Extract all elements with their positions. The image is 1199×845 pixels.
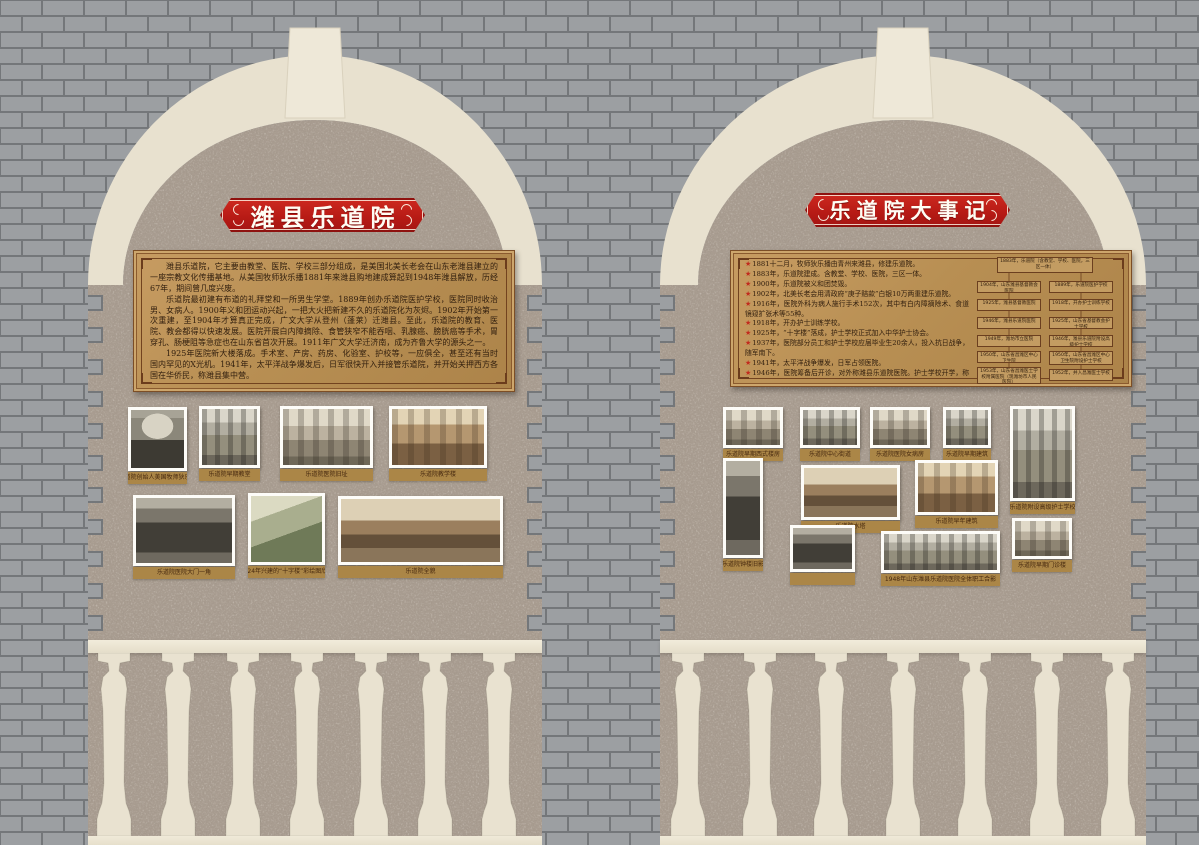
baluster [743,653,777,836]
photo-caption: 1948年山东潍县乐道院医院全体职工合影 [881,574,1000,586]
photo [801,465,900,520]
baluster [482,653,516,836]
panel-title: 乐道院大事记 [824,195,992,225]
flowchart-box: 1950年，山东省昌潍区中心卫生院附设护士学校 [1049,351,1113,365]
photo-image [793,528,852,569]
star-bullet-icon: ★ [745,369,751,377]
flowchart-box: 1946年，潍县乐道院医院 [977,317,1041,329]
photo [800,407,860,448]
flowchart-box: 1918年，开办护士训练学校 [1049,299,1113,311]
photo-image [1015,521,1069,556]
photo-image [392,409,484,465]
photo-caption: 乐道院早期门诊楼 [1012,560,1072,572]
balustrade-bottom-rail [88,836,542,845]
star-bullet-icon: ★ [745,300,751,308]
baluster [1101,653,1135,836]
baluster [226,653,260,836]
star-bullet-icon: ★ [745,290,751,298]
exhibition-panel-ledaoyuan-chronicle: 乐道院大事记 ★1881十二月，牧师狄乐播由青州来潍县，修建乐道院。★1883年… [660,0,1146,845]
photo-image [202,409,257,465]
star-bullet-icon: ★ [745,260,751,268]
flowchart-box: 1952年，并入昌潍医士学校 [1049,369,1113,381]
photo-image [136,498,232,563]
baluster [290,653,324,836]
timeline-item: ★1918年，开办护士训练学校。 [745,319,969,329]
keystone [873,28,933,118]
panel-title: 潍县乐道院 [245,198,401,233]
star-bullet-icon: ★ [745,339,751,347]
intro-paragraph: 1925年医院新大楼落成。手术室、产房、药房、化验室、护校等，一应俱全，甚至还有… [150,349,498,381]
photo-image [1013,409,1072,498]
timeline-list: ★1881十二月，牧师狄乐播由青州来潍县，修建乐道院。★1883年，乐道院建成。… [745,260,969,378]
photo-caption: 乐道院全貌 [338,566,503,578]
photo [943,407,991,448]
photo-caption: 乐道院附设高级护士学校 [1010,502,1075,514]
photo-image [873,410,927,445]
flowchart-box: 1950年，山东省昌潍区中心卫生院 [977,351,1041,363]
photo-image [283,409,370,465]
photo-image [131,410,184,468]
star-bullet-icon: ★ [745,280,751,288]
star-bullet-icon: ★ [745,329,751,337]
photo-image [803,410,857,445]
photo [280,406,373,468]
flowchart-box: 1889年，乐道院医护学校 [1049,281,1113,293]
baluster [958,653,992,836]
balustrade-bottom-rail [660,836,1146,845]
balustrade-top-rail [88,640,542,653]
intro-plaque: 潍县乐道院，它主要由教堂、医院、学校三部分组成，是美国北美长老会在山东老潍县建立… [133,250,515,392]
balustrade-top-rail [660,640,1146,653]
photo-image [726,461,760,555]
timeline-item: ★1916年，医院外科为病人施行手术152次，其中有白内障摘除术、食道镜窥扩张术… [745,300,969,320]
photo [870,407,930,448]
timeline-item: ★1883年，乐道院建成。含教堂、学校、医院，三区一体。 [745,270,969,280]
baluster [161,653,195,836]
timeline-item: ★1946年，医院筹备后开诊，对外称潍县乐道院医院。护士学校开学，称潍县乐道院附… [745,369,969,378]
baluster [354,653,388,836]
photo-caption: 1924年兴建的“十字楼”彩绘图欣赏 [248,566,325,578]
photo-caption [790,573,855,585]
photo-caption: 乐道院早期教堂 [199,469,260,481]
flowchart-box: 1904年，山东潍县基督教会医院 [977,281,1041,293]
timeline-item: ★1937年，医院部分员工和护士学校应届毕业生20余人，投入抗日战争，随军南下。 [745,339,969,359]
flowchart-box: 1953年，山东省昌潍医士学校附属医院（现潍坊市人民医院） [977,367,1041,384]
flowchart-box: 1946年，潍县乐道院附设高级护士学校 [1049,335,1113,347]
photo [133,495,235,566]
star-bullet-icon: ★ [745,270,751,278]
baluster [1030,653,1064,836]
timeline-item: ★1941年，太平洋战争爆发，日军占领医院。 [745,359,969,369]
photo-caption: 乐道院中心街道 [800,449,860,461]
photo [1010,406,1075,501]
star-bullet-icon: ★ [745,359,751,367]
photo-caption: 乐道院创始人美国牧师狄乐播 [128,472,187,484]
baluster [814,653,848,836]
photo [723,407,783,448]
photo [128,407,187,471]
lineage-flowchart: 1883年，乐道院（含教堂、学校、医院，三区一体）1904年，山东潍县基督教会医… [977,255,1117,385]
photo-image [726,410,780,445]
photo-image [946,410,988,445]
flowchart-box: 1925年，潍县基督教医院 [977,299,1041,311]
photo-caption: 乐道院医院大门一角 [133,567,235,579]
photo [1012,518,1072,559]
timeline-item: ★1900年，乐道院被义和团焚毁。 [745,280,969,290]
intro-text: 潍县乐道院，它主要由教堂、医院、学校三部分组成，是美国北美长老会在山东老潍县建立… [150,262,498,381]
balusters [88,653,542,836]
photo-caption: 乐道院早年建筑 [915,516,998,528]
keystone [285,28,345,118]
flowchart-box: 1883年，乐道院（含教堂、学校、医院，三区一体） [997,257,1093,273]
balusters [660,653,1146,836]
exhibition-panel-weixian-ledaoyuan: 潍县乐道院 潍县乐道院，它主要由教堂、医院、学校三部分组成，是美国北美长老会在山… [88,0,542,845]
photo [338,496,503,565]
baluster [97,653,131,836]
panel-title-banner: 乐道院大事记 [805,193,1010,227]
photo [389,406,487,468]
photo [790,525,855,572]
photo-image [804,468,897,517]
baluster [418,653,452,836]
timeline-item: ★1925年，“十字楼”落成，护士学校正式加入中华护士协会。 [745,329,969,339]
baluster [886,653,920,836]
baluster [671,653,705,836]
photo-image [884,534,997,570]
photo-image [251,496,322,562]
photo [881,531,1000,573]
banner-flourish-icon [399,213,415,229]
photo-caption: 乐道院钟楼旧影 [723,559,763,571]
photo-image [341,499,500,562]
intro-paragraph: 潍县乐道院，它主要由教堂、医院、学校三部分组成，是美国北美长老会在山东老潍县建立… [150,262,498,295]
panel-title-banner: 潍县乐道院 [220,198,425,232]
chronicle-plaque: ★1881十二月，牧师狄乐播由青州来潍县，修建乐道院。★1883年，乐道院建成。… [730,250,1132,387]
photo [723,458,763,558]
photo [915,460,998,515]
timeline-item: ★1881十二月，牧师狄乐播由青州来潍县，修建乐道院。 [745,260,969,270]
photo [248,493,325,565]
intro-paragraph: 乐道院最初建有布道的礼拜堂和一所男生学堂。1889年创办乐道院医护学校，医院同时… [150,295,498,349]
flowchart-box: 1949年，潍坊市立医院 [977,335,1041,347]
flowchart-box: 1925年，山东省基督教会护士学校 [1049,317,1113,329]
photo [199,406,260,468]
photo-caption: 乐道院医院旧址 [280,469,373,481]
photo-caption: 乐道院教学楼 [389,469,487,481]
timeline-item: ★1902年，北美长老会用清政府“庚子赔款”白银10万两重建乐道院。 [745,290,969,300]
star-bullet-icon: ★ [745,319,751,327]
photo-image [918,463,995,512]
